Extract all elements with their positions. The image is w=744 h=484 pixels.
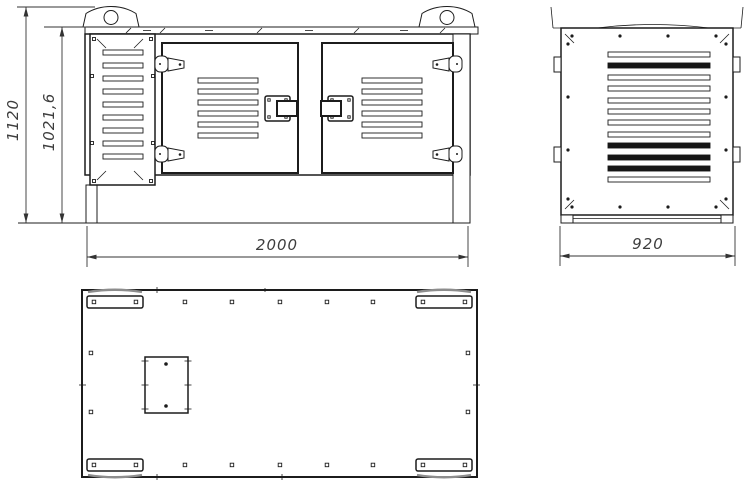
dim-front-width: 2000	[87, 226, 468, 267]
dim-front-body-height: 1021,6	[40, 27, 86, 223]
side-tab	[554, 147, 561, 162]
louver-panel-left	[90, 34, 155, 185]
generator-enclosure-drawing: 1120 1021,6 2000 920	[0, 0, 744, 484]
bottom-view	[79, 287, 480, 480]
dim-side-depth: 920	[560, 226, 735, 266]
access-cover	[142, 357, 192, 413]
lifting-lug-left	[83, 7, 139, 28]
corner-plate-tl	[87, 296, 143, 308]
dim-label-side-depth: 920	[632, 235, 664, 253]
side-tab	[733, 147, 740, 162]
side-tab	[554, 57, 561, 72]
side-leg-right	[721, 215, 733, 223]
front-view	[18, 7, 478, 224]
dim-label-front-width: 2000	[256, 236, 298, 254]
lug-hole-icon	[104, 11, 118, 25]
corner-plate-tr	[416, 296, 472, 308]
lifting-lug-right	[419, 7, 475, 28]
base-plate	[82, 290, 477, 477]
corner-plate-bl	[87, 459, 143, 471]
side-tab	[733, 57, 740, 72]
leg-left	[86, 185, 97, 223]
drawing-canvas: 1120 1021,6 2000 920	[0, 0, 744, 484]
lug-hole-icon	[440, 11, 454, 25]
side-leg-left	[561, 215, 573, 223]
corner-plate-br	[416, 459, 472, 471]
dim-label-front-body-height: 1021,6	[40, 93, 58, 152]
panel-louvers	[103, 50, 143, 159]
side-view	[551, 7, 743, 223]
dim-label-front-total-height: 1120	[4, 99, 22, 141]
